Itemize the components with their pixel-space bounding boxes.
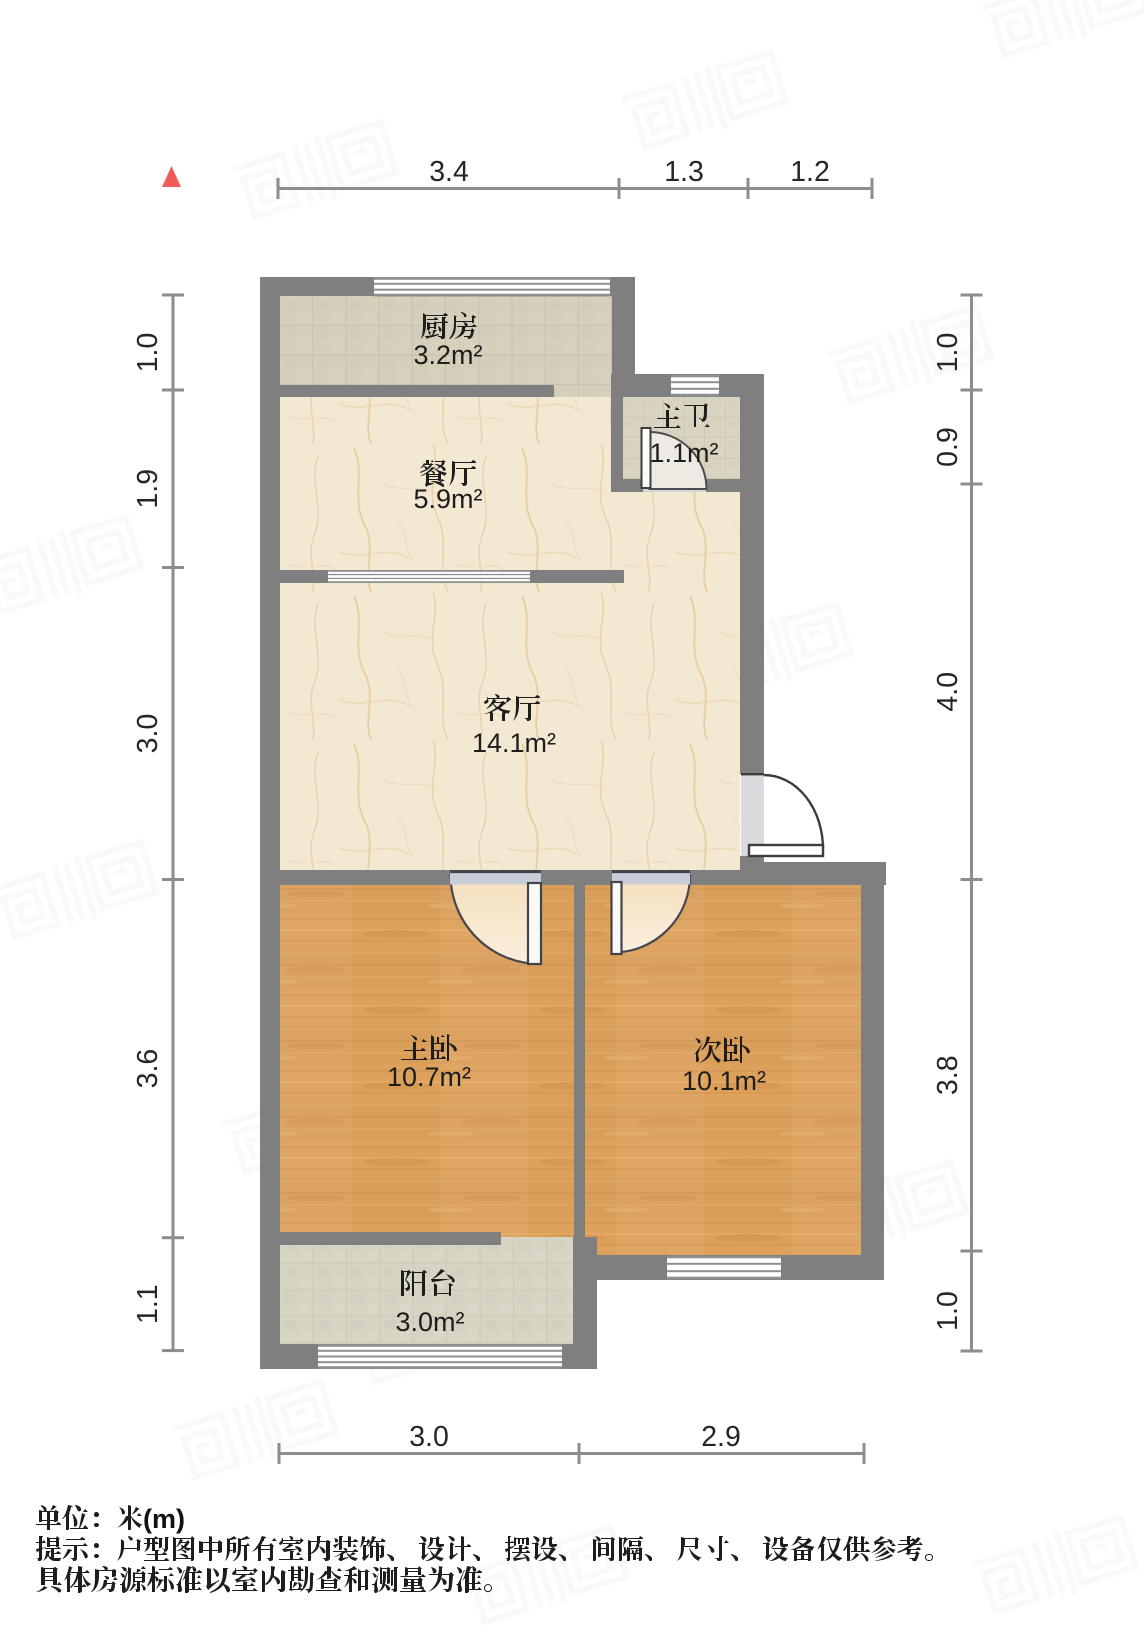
svg-text:14.1m²: 14.1m² (472, 728, 556, 758)
svg-text:0.9: 0.9 (932, 427, 964, 467)
svg-text:1.0: 1.0 (132, 333, 164, 373)
svg-text:1.9: 1.9 (132, 469, 164, 509)
svg-text:1.0: 1.0 (932, 333, 964, 373)
svg-text:2.9: 2.9 (701, 1421, 741, 1453)
svg-text:3.0: 3.0 (409, 1421, 449, 1453)
svg-text:3.6: 3.6 (132, 1049, 164, 1089)
svg-text:1.3: 1.3 (664, 156, 704, 188)
svg-text:3.2m²: 3.2m² (413, 340, 482, 370)
svg-text:10.1m²: 10.1m² (682, 1066, 766, 1096)
svg-text:1.0: 1.0 (932, 1291, 964, 1331)
svg-text:10.7m²: 10.7m² (387, 1062, 471, 1092)
svg-text:3.4: 3.4 (429, 156, 469, 188)
svg-text:3.0m²: 3.0m² (395, 1307, 464, 1337)
svg-text:3.8: 3.8 (932, 1055, 964, 1095)
svg-text:4.0: 4.0 (932, 672, 964, 712)
svg-text:1.1m²: 1.1m² (649, 438, 718, 468)
svg-text:3.0: 3.0 (132, 714, 164, 754)
svg-text:5.9m²: 5.9m² (413, 484, 482, 514)
svg-text:1.1: 1.1 (132, 1284, 164, 1324)
svg-text:(m): (m) (143, 1504, 185, 1534)
svg-text:1.2: 1.2 (790, 156, 830, 188)
